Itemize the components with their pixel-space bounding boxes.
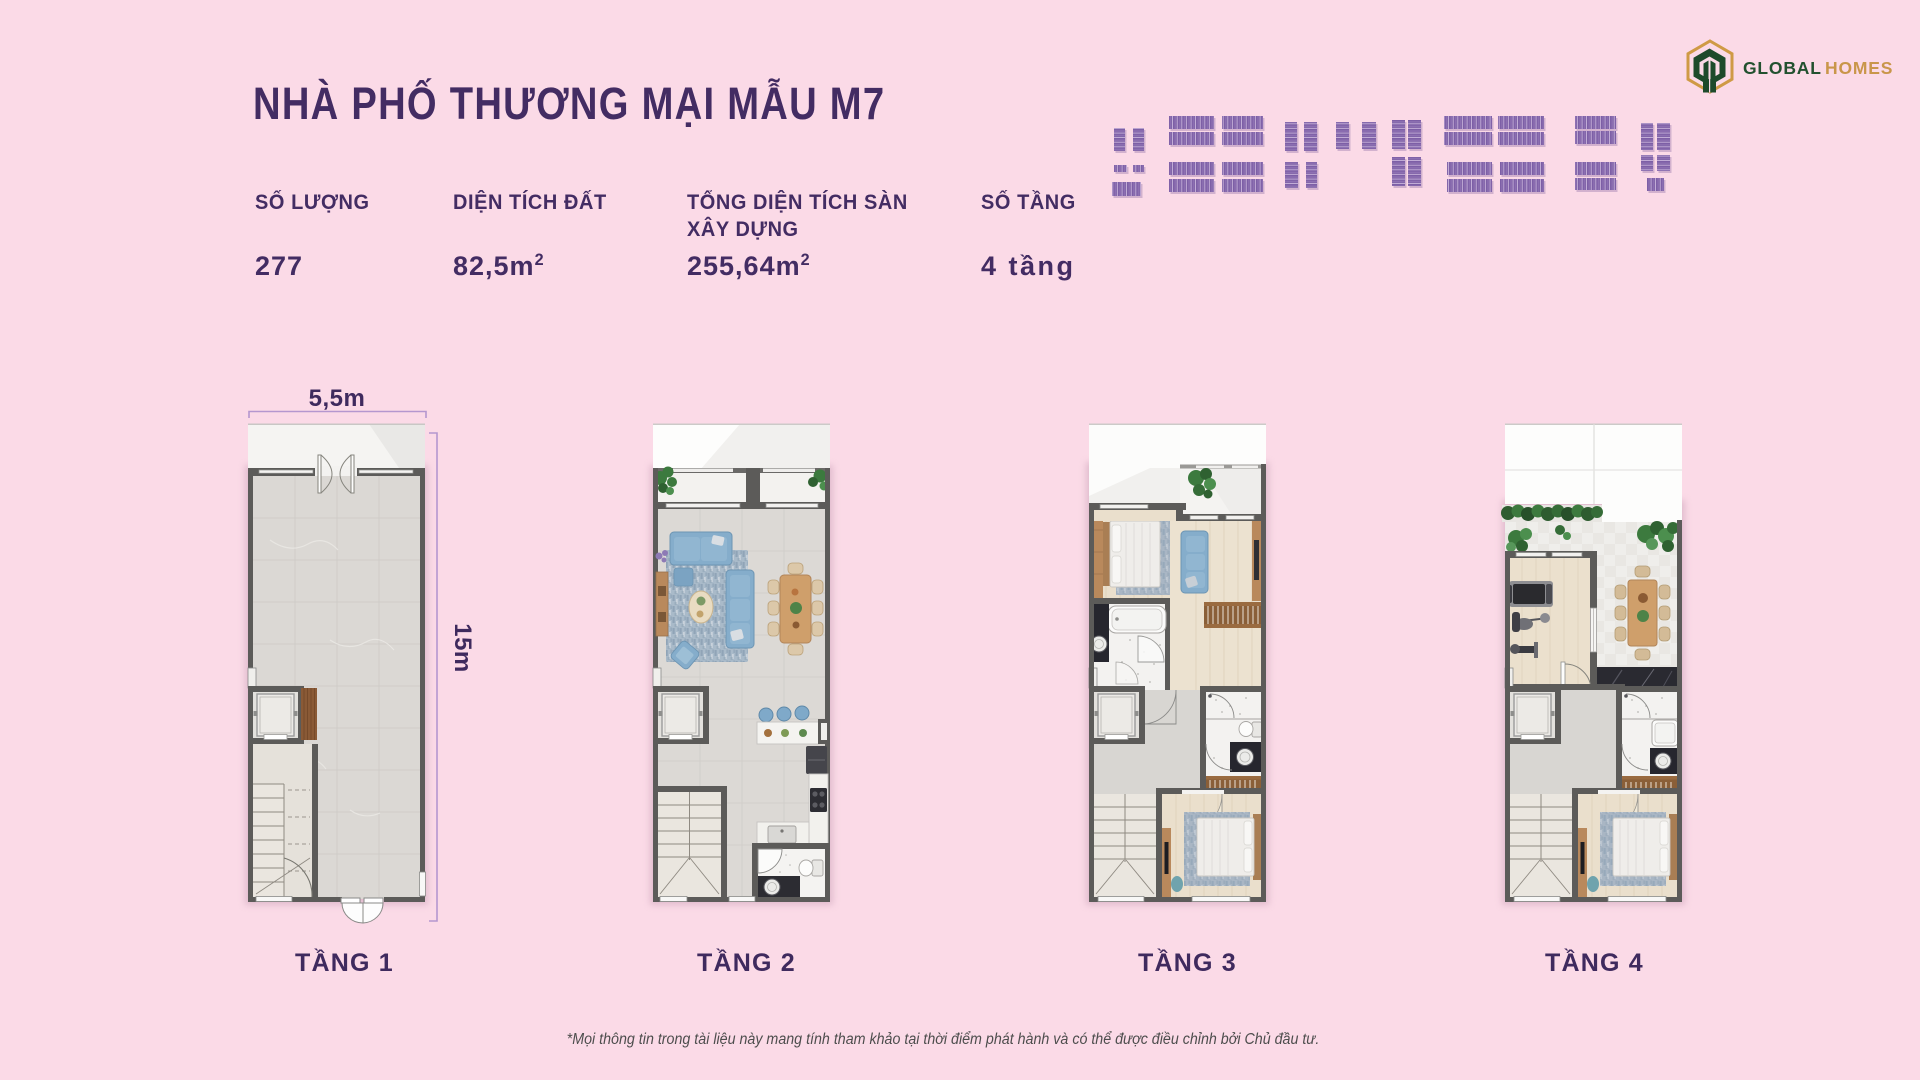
svg-text:HOMES: HOMES — [1825, 58, 1893, 78]
svg-text:5,5m: 5,5m — [309, 385, 366, 412]
svg-text:15m: 15m — [449, 623, 476, 673]
svg-text:GLOBAL: GLOBAL — [1743, 58, 1822, 78]
